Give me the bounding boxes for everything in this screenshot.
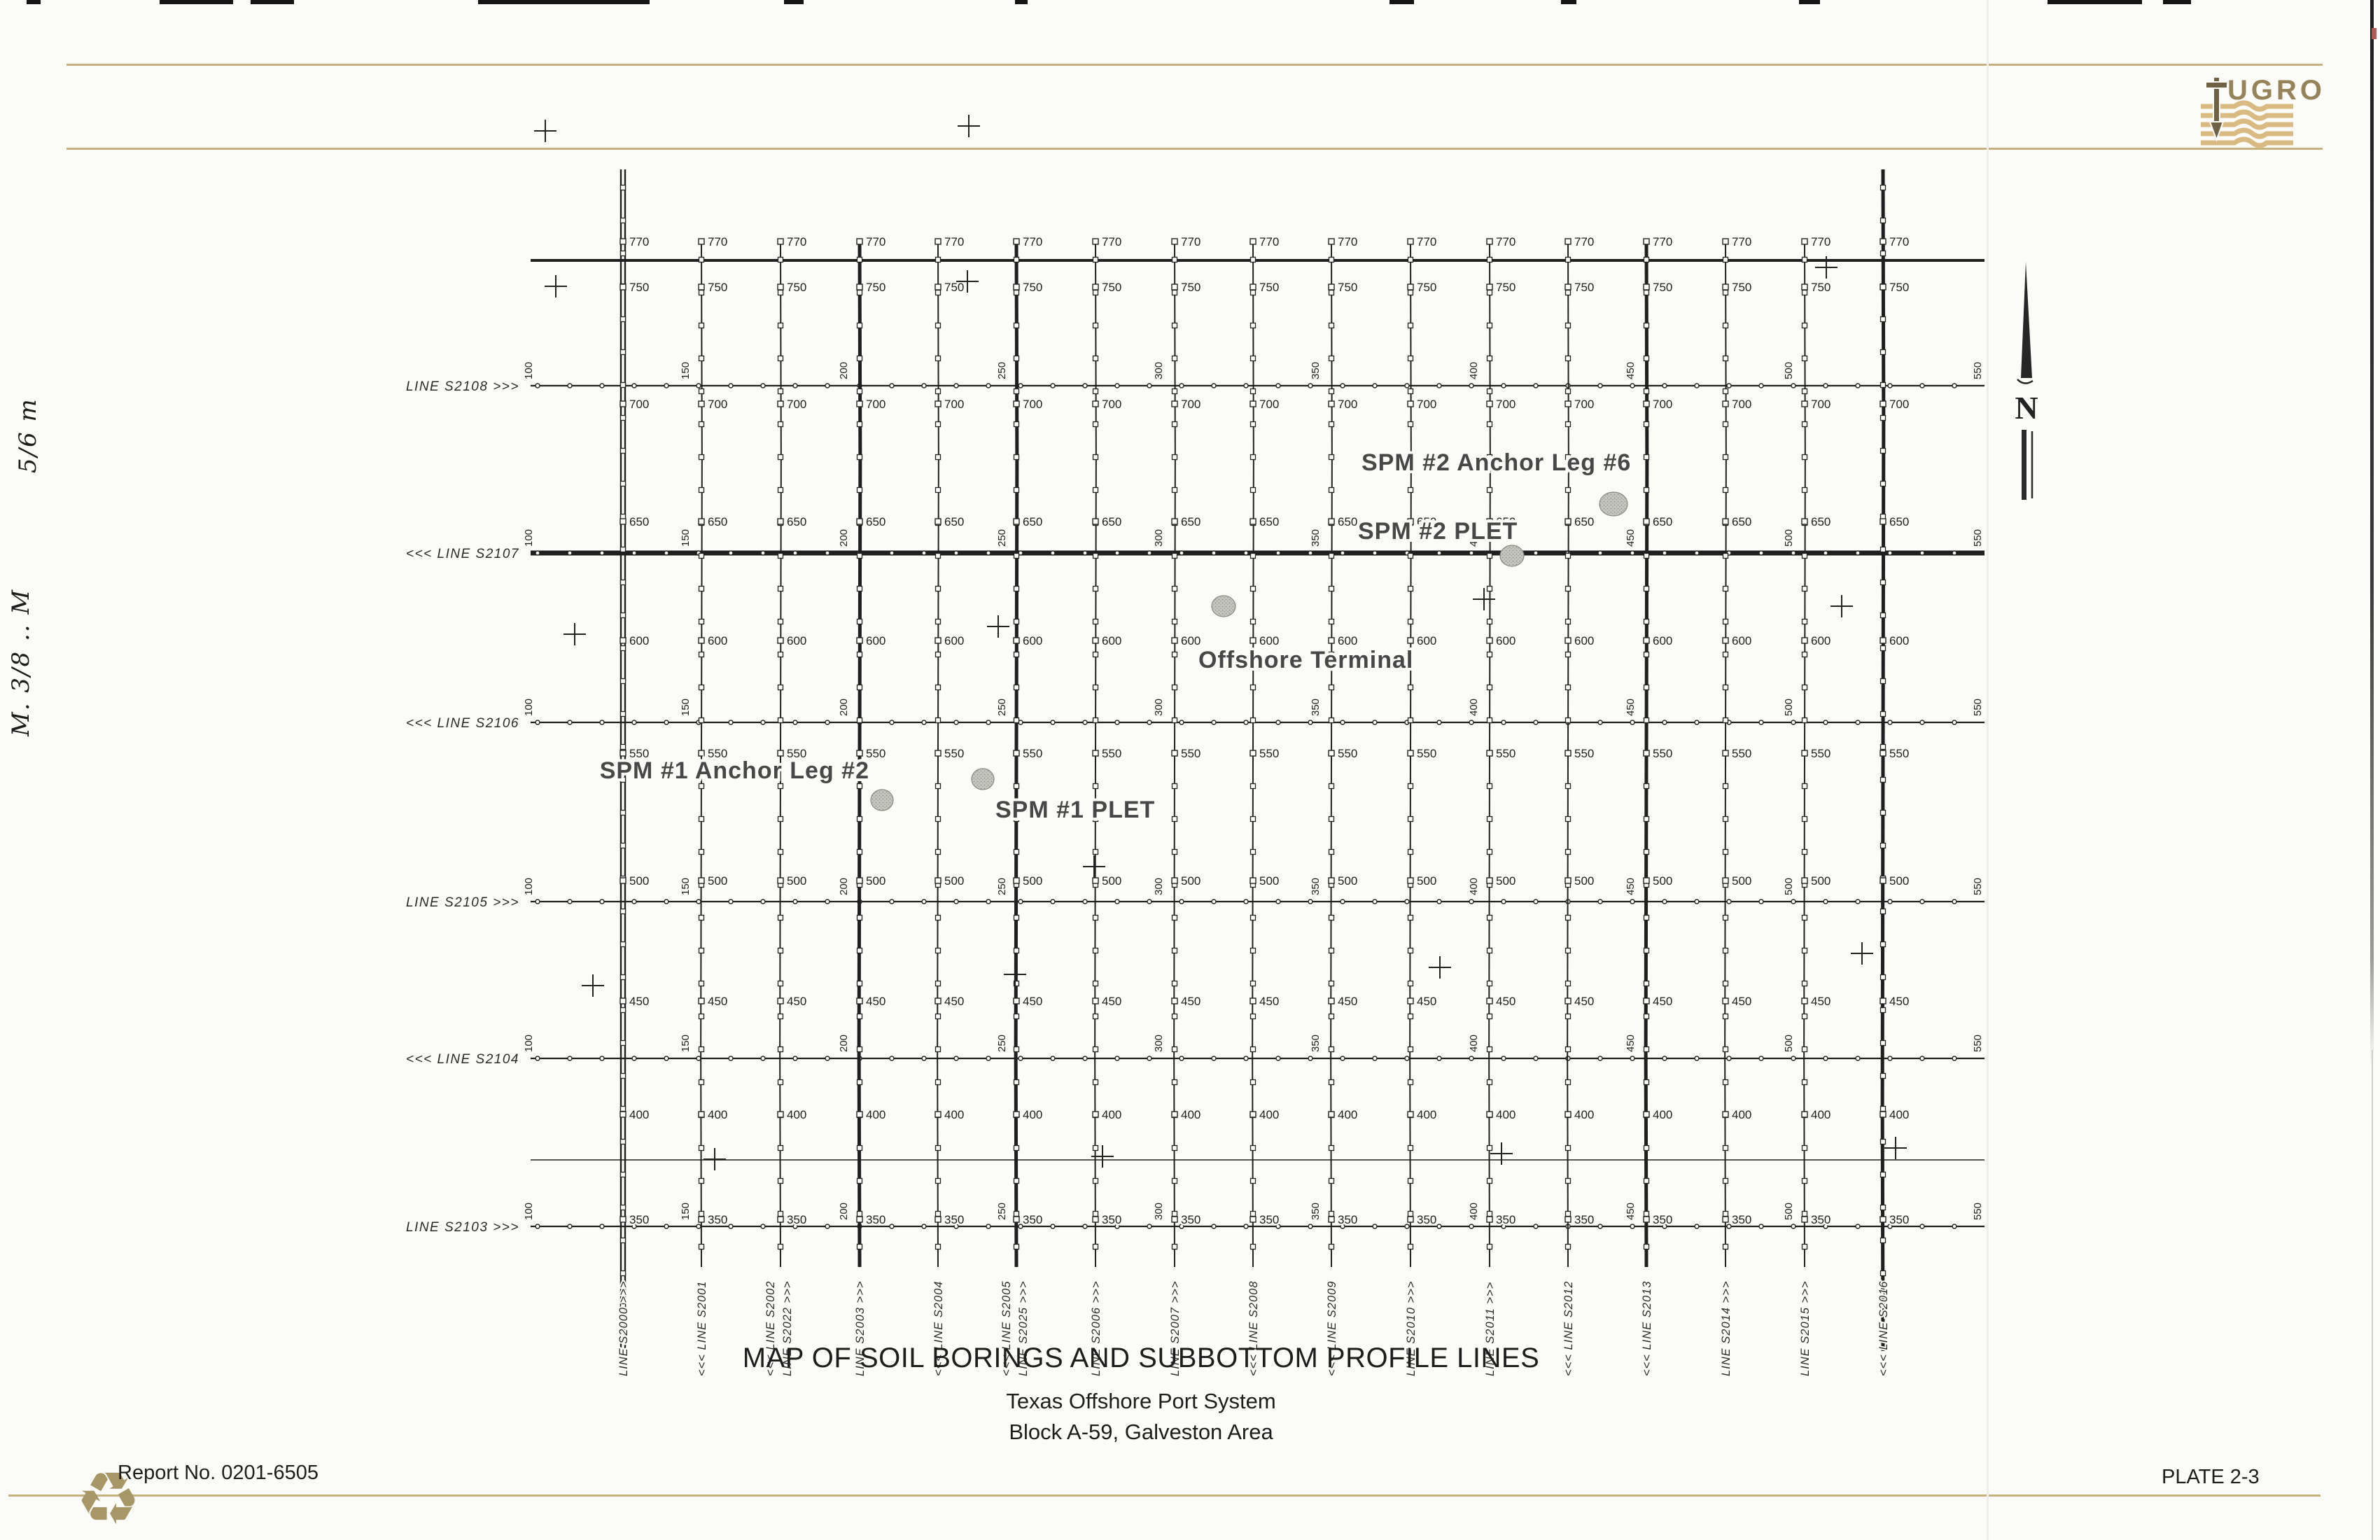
tick-square	[778, 850, 783, 855]
shotpoint-dot	[1501, 899, 1506, 904]
shotpoint-dot	[1276, 720, 1280, 724]
tick-square	[1172, 1112, 1177, 1117]
shotpoint-dot	[1630, 899, 1634, 904]
tick-square	[1251, 685, 1256, 690]
depth-value-label: 600	[787, 634, 806, 647]
shotpoint-label: 350	[1310, 878, 1322, 895]
tick-square	[1329, 817, 1334, 822]
scanned-map-plate: 5/6 m M. 3/8 .. M UGRO f N	[0, 0, 2380, 1540]
tick-square	[1251, 323, 1256, 328]
shotpoint-dot	[1051, 1224, 1055, 1228]
tick-square	[1172, 389, 1177, 394]
depth-value-label: 700	[1023, 398, 1042, 411]
depth-value-label: 350	[1102, 1213, 1121, 1226]
tick-square	[1251, 587, 1256, 591]
shotpoint-dot	[1469, 1056, 1473, 1060]
tick-square	[699, 401, 704, 407]
tick-square	[1251, 422, 1256, 427]
tick-square	[1881, 843, 1886, 848]
tick-square	[1408, 998, 1413, 1004]
tick-square	[1014, 258, 1019, 262]
depth-value-label: 750	[1181, 281, 1200, 294]
tick-square	[1014, 1047, 1019, 1052]
depth-value-label: 400	[866, 1108, 885, 1121]
tick-square	[1566, 356, 1571, 361]
line-label-left: <<< LINE S2107	[406, 547, 519, 561]
tick-square	[1723, 718, 1728, 723]
shotpoint-dot	[535, 1224, 540, 1228]
shotpoint-dot	[1695, 1224, 1699, 1228]
shotpoint-label: 100	[523, 1203, 535, 1220]
depth-value-label: 700	[944, 398, 964, 411]
fix-cross-marker	[703, 1148, 726, 1170]
tick-square	[1487, 323, 1492, 328]
tick-square	[1251, 817, 1256, 822]
tick-square	[1723, 284, 1728, 290]
tick-square	[1093, 718, 1098, 723]
tick-square	[1329, 948, 1334, 953]
depth-value-label: 450	[866, 995, 885, 1008]
depth-value-label: 350	[1574, 1213, 1594, 1226]
tick-square	[1802, 850, 1807, 855]
shotpoint-dot	[1276, 899, 1280, 904]
tick-square	[1251, 1080, 1256, 1085]
shotpoint-dot	[1244, 899, 1248, 904]
depth-value-label: 600	[944, 634, 964, 647]
tick-square	[1014, 1245, 1019, 1249]
shotpoint-dot	[1759, 1224, 1763, 1228]
tick-square	[936, 619, 941, 624]
tick-square	[1566, 652, 1571, 657]
tick-square	[1880, 1112, 1886, 1117]
depth-value-label: 750	[1023, 281, 1042, 294]
tick-square	[1566, 290, 1571, 295]
tick-square	[699, 750, 704, 756]
tick-square	[699, 1047, 704, 1052]
tick-square	[1644, 1179, 1649, 1184]
depth-value-label: 450	[1732, 995, 1751, 1008]
tick-square	[620, 638, 626, 643]
tick-square	[699, 916, 704, 920]
tick-square	[778, 750, 783, 756]
tick-square	[1644, 258, 1649, 262]
tick-square	[1487, 1080, 1492, 1085]
tick-square	[936, 290, 941, 295]
tick-square	[935, 878, 941, 883]
tick-square	[1723, 948, 1728, 953]
tick-square	[1251, 290, 1256, 295]
shotpoint-dot	[1437, 551, 1441, 555]
survey-line-label: LINE S2015 >>>	[1799, 1281, 1812, 1376]
tick-square	[1172, 422, 1177, 427]
soil-boring-marker-spm1-anchor-boring	[871, 790, 893, 811]
shotpoint-dot	[1373, 720, 1377, 724]
shotpoint-dot	[761, 551, 765, 555]
tick-square	[1329, 998, 1334, 1004]
shotpoint-dot	[1598, 1224, 1602, 1228]
shotpoint-dot	[1051, 720, 1055, 724]
shotpoint-dot	[1920, 720, 1924, 724]
tick-square	[1723, 356, 1728, 361]
shotpoint-dot	[600, 551, 604, 555]
shotpoint-dot	[1051, 1056, 1055, 1060]
tick-square	[1723, 878, 1728, 883]
tick-square	[857, 1146, 862, 1151]
tick-square	[857, 784, 862, 789]
depth-value-label: 750	[866, 281, 885, 294]
tick-square	[1487, 239, 1492, 244]
tick-square	[1329, 239, 1334, 244]
depth-value-label: 650	[1338, 515, 1357, 528]
shotpoint-dot	[1018, 384, 1023, 388]
shotpoint-dot	[568, 720, 572, 724]
shotpoint-dot	[825, 720, 829, 724]
tick-square	[621, 1172, 626, 1177]
tick-square	[1487, 356, 1492, 361]
tick-square	[1014, 750, 1019, 756]
tick-square	[857, 718, 862, 723]
tick-square	[1802, 916, 1807, 920]
tick-square	[621, 1107, 626, 1112]
tick-square	[699, 685, 704, 690]
depth-value-label: 770	[1102, 235, 1121, 248]
depth-value-label: 450	[1811, 995, 1830, 1008]
tick-square	[857, 750, 862, 756]
tick-square	[1093, 587, 1098, 591]
tick-square	[857, 323, 862, 328]
shotpoint-label: 350	[1310, 362, 1322, 379]
tick-square	[1408, 258, 1413, 262]
shotpoint-dot	[986, 720, 990, 724]
depth-value-label: 450	[1102, 995, 1121, 1008]
tick-square	[857, 948, 862, 953]
depth-value-label: 550	[1653, 747, 1672, 760]
tick-square	[1880, 519, 1886, 524]
tick-square	[1565, 998, 1571, 1004]
fix-cross-marker	[958, 115, 980, 137]
shotpoint-dot	[729, 384, 733, 388]
shotpoint-dot	[1759, 551, 1763, 555]
depth-value-label: 400	[1259, 1108, 1279, 1121]
tick-square	[1487, 718, 1492, 723]
tick-square	[778, 488, 783, 493]
tick-square	[1408, 488, 1413, 493]
depth-value-label: 750	[1102, 281, 1121, 294]
depth-value-label: 750	[1653, 281, 1672, 294]
tick-square	[1723, 1146, 1728, 1151]
tick-square	[1172, 1245, 1177, 1249]
shotpoint-label: 550	[1972, 878, 1984, 895]
shotpoint-dot	[922, 1056, 926, 1060]
tick-square	[1881, 1271, 1886, 1276]
tick-square	[1644, 1146, 1649, 1151]
shotpoint-label: 350	[1310, 1035, 1322, 1052]
tick-square	[1172, 1179, 1177, 1184]
shotpoint-label: 300	[1153, 878, 1165, 895]
tick-square	[1802, 587, 1807, 591]
tick-square	[1014, 1212, 1019, 1217]
tick-square	[621, 679, 626, 684]
shotpoint-dot	[696, 899, 701, 904]
tick-square	[1487, 1112, 1492, 1117]
shotpoint-dot	[1083, 1224, 1087, 1228]
shotpoint-dot	[1244, 1224, 1248, 1228]
shotpoint-dot	[1501, 1056, 1506, 1060]
shotpoint-label: 250	[996, 362, 1008, 379]
shotpoint-dot	[1083, 1056, 1087, 1060]
tick-square	[935, 1217, 941, 1222]
tick-square	[1408, 916, 1413, 920]
shotpoint-label: 100	[523, 878, 535, 895]
tick-square	[1644, 750, 1649, 756]
tick-square	[1329, 685, 1334, 690]
shotpoint-dot	[1823, 551, 1828, 555]
tick-square	[1329, 981, 1334, 986]
tick-square	[1566, 718, 1571, 723]
tick-square	[1408, 1146, 1413, 1151]
shotpoint-label: 250	[996, 1203, 1008, 1220]
tick-square	[857, 619, 862, 624]
tick-square	[1723, 488, 1728, 493]
depth-value-label: 700	[1102, 398, 1121, 411]
shotpoint-dot	[600, 720, 604, 724]
shotpoint-dot	[1662, 384, 1667, 388]
shotpoint-label: 300	[1153, 1203, 1165, 1220]
tick-square	[1644, 587, 1649, 591]
tick-square	[1487, 290, 1492, 295]
tick-square	[699, 718, 704, 723]
shotpoint-dot	[1147, 1224, 1151, 1228]
tick-square	[621, 185, 626, 190]
fix-cross-marker	[1851, 942, 1873, 965]
tick-square	[778, 718, 783, 723]
shotpoint-dot	[922, 899, 926, 904]
tick-square	[620, 239, 626, 244]
tick-square	[621, 942, 626, 947]
survey-line-label: LINE S2014 >>>	[1720, 1281, 1732, 1376]
tick-square	[778, 284, 783, 290]
shotpoint-dot	[1083, 720, 1087, 724]
annotation-spm2-anchor-leg-6: SPM #2 Anchor Leg #6	[1361, 449, 1631, 476]
depth-value-label: 400	[629, 1108, 649, 1121]
tick-square	[1014, 1014, 1019, 1019]
tick-square	[936, 1047, 941, 1052]
depth-value-label: 500	[708, 874, 727, 888]
tick-square	[1723, 389, 1728, 394]
tick-square	[699, 619, 704, 624]
shotpoint-dot	[1469, 384, 1473, 388]
tick-square	[1644, 850, 1649, 855]
tick-square	[1172, 981, 1177, 986]
shotpoint-dot	[1212, 899, 1216, 904]
shotpoint-dot	[825, 384, 829, 388]
tick-square	[620, 284, 626, 290]
tick-square	[1250, 1217, 1256, 1222]
tick-square	[1014, 356, 1019, 361]
tick-square	[857, 1217, 862, 1222]
survey-line-label: <<< LINE S2012	[1562, 1281, 1575, 1376]
tick-square	[1329, 401, 1334, 407]
tick-square	[1014, 685, 1019, 690]
tick-square	[1881, 712, 1886, 717]
tick-square	[1566, 1146, 1571, 1151]
depth-value-label: 770	[629, 235, 649, 248]
shotpoint-dot	[1856, 1056, 1860, 1060]
tick-square	[1802, 981, 1807, 986]
tick-square	[1723, 981, 1728, 986]
survey-line-label: <<< LINE S2016	[1877, 1281, 1890, 1376]
depth-value-label: 650	[866, 515, 885, 528]
depth-value-label: 400	[1732, 1108, 1751, 1121]
tick-square	[935, 750, 941, 756]
tick-square	[1881, 350, 1886, 355]
map-subtitle-project: Texas Offshore Port System	[1006, 1389, 1275, 1414]
depth-value-label: 600	[1653, 634, 1672, 647]
tick-square	[1251, 356, 1256, 361]
tick-square	[699, 1212, 704, 1217]
tick-square	[1014, 284, 1019, 290]
shotpoint-label: 250	[996, 699, 1008, 716]
tick-square	[778, 1047, 783, 1052]
tick-square	[935, 239, 941, 244]
tick-square	[936, 1212, 941, 1217]
tick-square	[1723, 519, 1728, 524]
tick-square	[1881, 1172, 1886, 1177]
tick-square	[1172, 455, 1177, 460]
tick-square	[621, 416, 626, 421]
tick-square	[1881, 1140, 1886, 1144]
tick-square	[1723, 850, 1728, 855]
tick-square	[1014, 878, 1019, 883]
tick-square	[1723, 619, 1728, 624]
depth-value-label: 750	[787, 281, 806, 294]
shotpoint-dot	[664, 899, 668, 904]
tick-square	[1172, 239, 1177, 244]
tick-square	[857, 850, 862, 855]
depth-value-label: 450	[1259, 995, 1279, 1008]
tick-square	[1881, 185, 1886, 190]
tick-square	[778, 1080, 783, 1085]
depth-value-label: 400	[1102, 1108, 1121, 1121]
shotpoint-label: 300	[1153, 699, 1165, 716]
depth-value-label: 400	[787, 1108, 806, 1121]
depth-value-label: 550	[1102, 747, 1121, 760]
tick-square	[1408, 750, 1413, 756]
tick-square	[1408, 718, 1413, 723]
tick-square	[1093, 455, 1098, 460]
line-label-left: LINE S2108 >>>	[406, 379, 519, 394]
shotpoint-dot	[1662, 1056, 1667, 1060]
tick-square	[1487, 948, 1492, 953]
shotpoint-dot	[1340, 720, 1345, 724]
tick-square	[1408, 1014, 1413, 1019]
shotpoint-dot	[1952, 551, 1956, 555]
tick-square	[1644, 401, 1649, 407]
tick-square	[857, 290, 862, 295]
tick-square	[699, 422, 704, 427]
tick-square	[936, 1245, 941, 1249]
tick-square	[1802, 1212, 1807, 1217]
shotpoint-dot	[1437, 1056, 1441, 1060]
tick-square	[1251, 718, 1256, 723]
shotpoint-dot	[1018, 1056, 1023, 1060]
shotpoint-dot	[664, 551, 668, 555]
tick-square	[1566, 1245, 1571, 1249]
tick-square	[1881, 251, 1886, 256]
tick-square	[1802, 652, 1807, 657]
tick-square	[936, 422, 941, 427]
survey-line-label: <<< LINE S2013	[1641, 1281, 1653, 1376]
shotpoint-dot	[1695, 1056, 1699, 1060]
shotpoint-dot	[1308, 899, 1312, 904]
shotpoint-dot	[632, 551, 636, 555]
tick-square	[1644, 981, 1649, 986]
depth-value-label: 550	[1181, 747, 1200, 760]
tick-square	[1566, 850, 1571, 855]
shotpoint-label: 450	[1625, 529, 1637, 547]
line-label-left: LINE S2105 >>>	[406, 895, 519, 910]
depth-value-label: 700	[1181, 398, 1200, 411]
tick-square	[699, 587, 704, 591]
tick-square	[1172, 685, 1177, 690]
tick-square	[1172, 1146, 1177, 1151]
tick-square	[1565, 239, 1571, 244]
shotpoint-dot	[986, 1224, 990, 1228]
map-subtitle-location: Block A-59, Galveston Area	[1009, 1420, 1273, 1445]
depth-value-label: 350	[866, 1213, 885, 1226]
tick-square	[1880, 239, 1886, 244]
tick-square	[1565, 878, 1571, 883]
tick-square	[1566, 685, 1571, 690]
shotpoint-dot	[535, 899, 540, 904]
depth-value-label: 770	[1732, 235, 1751, 248]
tick-square	[1093, 519, 1098, 524]
tick-square	[1014, 1179, 1019, 1184]
depth-value-label: 750	[1496, 281, 1515, 294]
shotpoint-dot	[1791, 720, 1795, 724]
tick-square	[1408, 587, 1413, 591]
plate-number: PLATE 2-3	[2162, 1466, 2260, 1489]
tick-square	[1329, 784, 1334, 789]
tick-square	[1723, 1212, 1728, 1217]
shotpoint-dot	[1469, 899, 1473, 904]
depth-value-label: 450	[1653, 995, 1672, 1008]
shotpoint-dot	[600, 1224, 604, 1228]
shotpoint-dot	[1115, 384, 1119, 388]
shotpoint-dot	[1888, 899, 1892, 904]
shotpoint-dot	[1727, 1224, 1731, 1228]
tick-square	[621, 811, 626, 815]
tick-square	[857, 1179, 862, 1184]
shotpoint-dot	[1212, 720, 1216, 724]
shotpoint-dot	[1534, 1224, 1538, 1228]
shotpoint-dot	[1952, 720, 1956, 724]
tick-square	[857, 401, 862, 407]
tick-square	[936, 784, 941, 789]
depth-value-label: 650	[787, 515, 806, 528]
tick-square	[1566, 389, 1571, 394]
tick-square	[1408, 1245, 1413, 1249]
tick-square	[1644, 998, 1649, 1004]
depth-value-label: 700	[1574, 398, 1594, 411]
tick-square	[699, 784, 704, 789]
tick-square	[1802, 1014, 1807, 1019]
tick-square	[778, 323, 783, 328]
tick-square	[1565, 750, 1571, 756]
depth-value-label: 500	[944, 874, 964, 888]
tick-square	[621, 1074, 626, 1079]
tick-square	[1093, 1146, 1098, 1151]
